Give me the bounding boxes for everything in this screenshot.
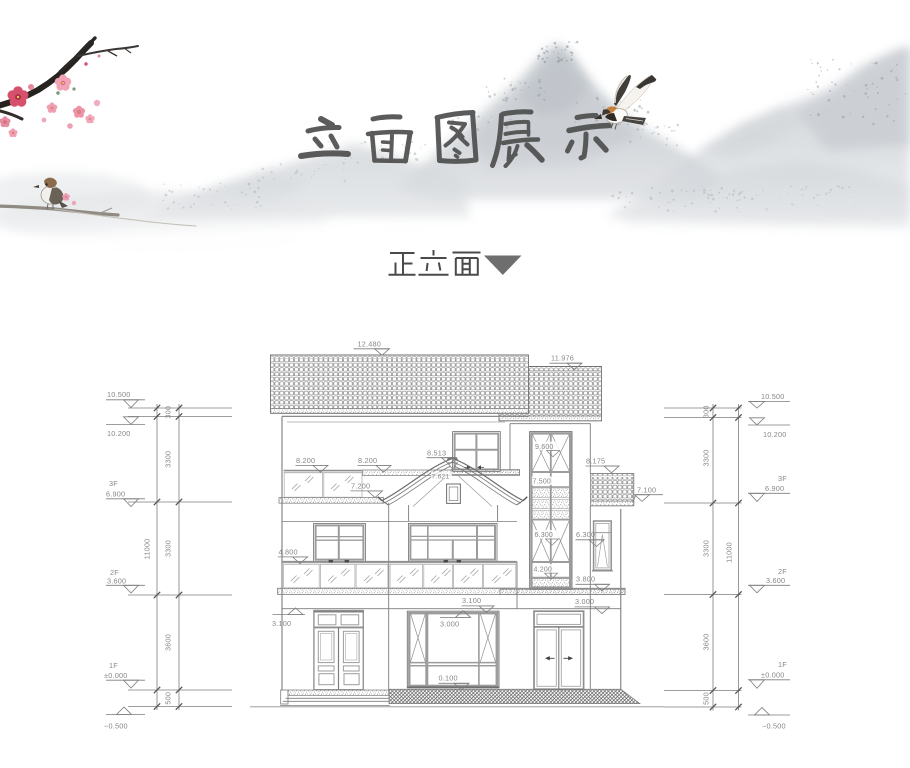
svg-text:4.800: 4.800 xyxy=(279,547,298,556)
svg-text:7.100: 7.100 xyxy=(637,485,656,494)
svg-text:8.175: 8.175 xyxy=(586,457,605,466)
svg-text:3600: 3600 xyxy=(702,633,711,650)
svg-text:10.500: 10.500 xyxy=(761,392,785,401)
svg-text:9.600: 9.600 xyxy=(535,444,554,451)
svg-text:12.480: 12.480 xyxy=(358,339,382,348)
svg-text:3.100: 3.100 xyxy=(462,596,481,605)
svg-text:300: 300 xyxy=(702,405,711,418)
svg-text:1F: 1F xyxy=(778,660,787,669)
svg-text:3.800: 3.800 xyxy=(576,575,595,584)
svg-text:10.200: 10.200 xyxy=(763,430,787,439)
svg-text:11000: 11000 xyxy=(725,542,734,563)
svg-text:3300: 3300 xyxy=(164,451,173,468)
svg-text:1F: 1F xyxy=(109,661,118,670)
svg-text:500: 500 xyxy=(164,692,173,705)
svg-text:−0.500: −0.500 xyxy=(762,721,786,730)
svg-text:3F: 3F xyxy=(109,479,118,488)
svg-text:3F: 3F xyxy=(778,474,787,483)
svg-text:7.621: 7.621 xyxy=(432,474,450,481)
svg-text:3.000: 3.000 xyxy=(440,619,459,628)
svg-text:4.200: 4.200 xyxy=(534,566,553,573)
svg-text:6.300: 6.300 xyxy=(576,530,595,539)
svg-text:3.000: 3.000 xyxy=(575,597,594,606)
svg-text:3300: 3300 xyxy=(702,449,711,466)
svg-text:300: 300 xyxy=(164,406,173,419)
svg-text:3300: 3300 xyxy=(702,540,711,557)
svg-text:−0.500: −0.500 xyxy=(104,722,128,731)
svg-text:3600: 3600 xyxy=(164,634,173,651)
svg-text:6.900: 6.900 xyxy=(106,490,125,499)
svg-text:10.500: 10.500 xyxy=(107,390,131,399)
svg-text:0.100: 0.100 xyxy=(439,674,458,683)
svg-text:3.600: 3.600 xyxy=(107,576,126,585)
svg-text:10.200: 10.200 xyxy=(107,429,131,438)
svg-text:3.100: 3.100 xyxy=(272,619,291,628)
svg-text:7.500: 7.500 xyxy=(533,479,552,486)
svg-text:3.600: 3.600 xyxy=(766,576,785,585)
svg-text:500: 500 xyxy=(702,692,711,705)
svg-text:7.200: 7.200 xyxy=(351,481,370,490)
svg-text:8.513: 8.513 xyxy=(427,448,446,457)
svg-text:11.976: 11.976 xyxy=(551,354,574,363)
svg-text:8.200: 8.200 xyxy=(358,456,377,465)
svg-text:±0.000: ±0.000 xyxy=(104,671,127,680)
svg-text:8.200: 8.200 xyxy=(296,456,315,465)
svg-text:6.900: 6.900 xyxy=(765,484,784,493)
svg-text:11000: 11000 xyxy=(143,539,152,560)
svg-text:2F: 2F xyxy=(778,567,787,576)
svg-text:3300: 3300 xyxy=(164,540,173,557)
svg-text:±0.000: ±0.000 xyxy=(761,670,784,679)
svg-text:6.300: 6.300 xyxy=(535,532,554,539)
